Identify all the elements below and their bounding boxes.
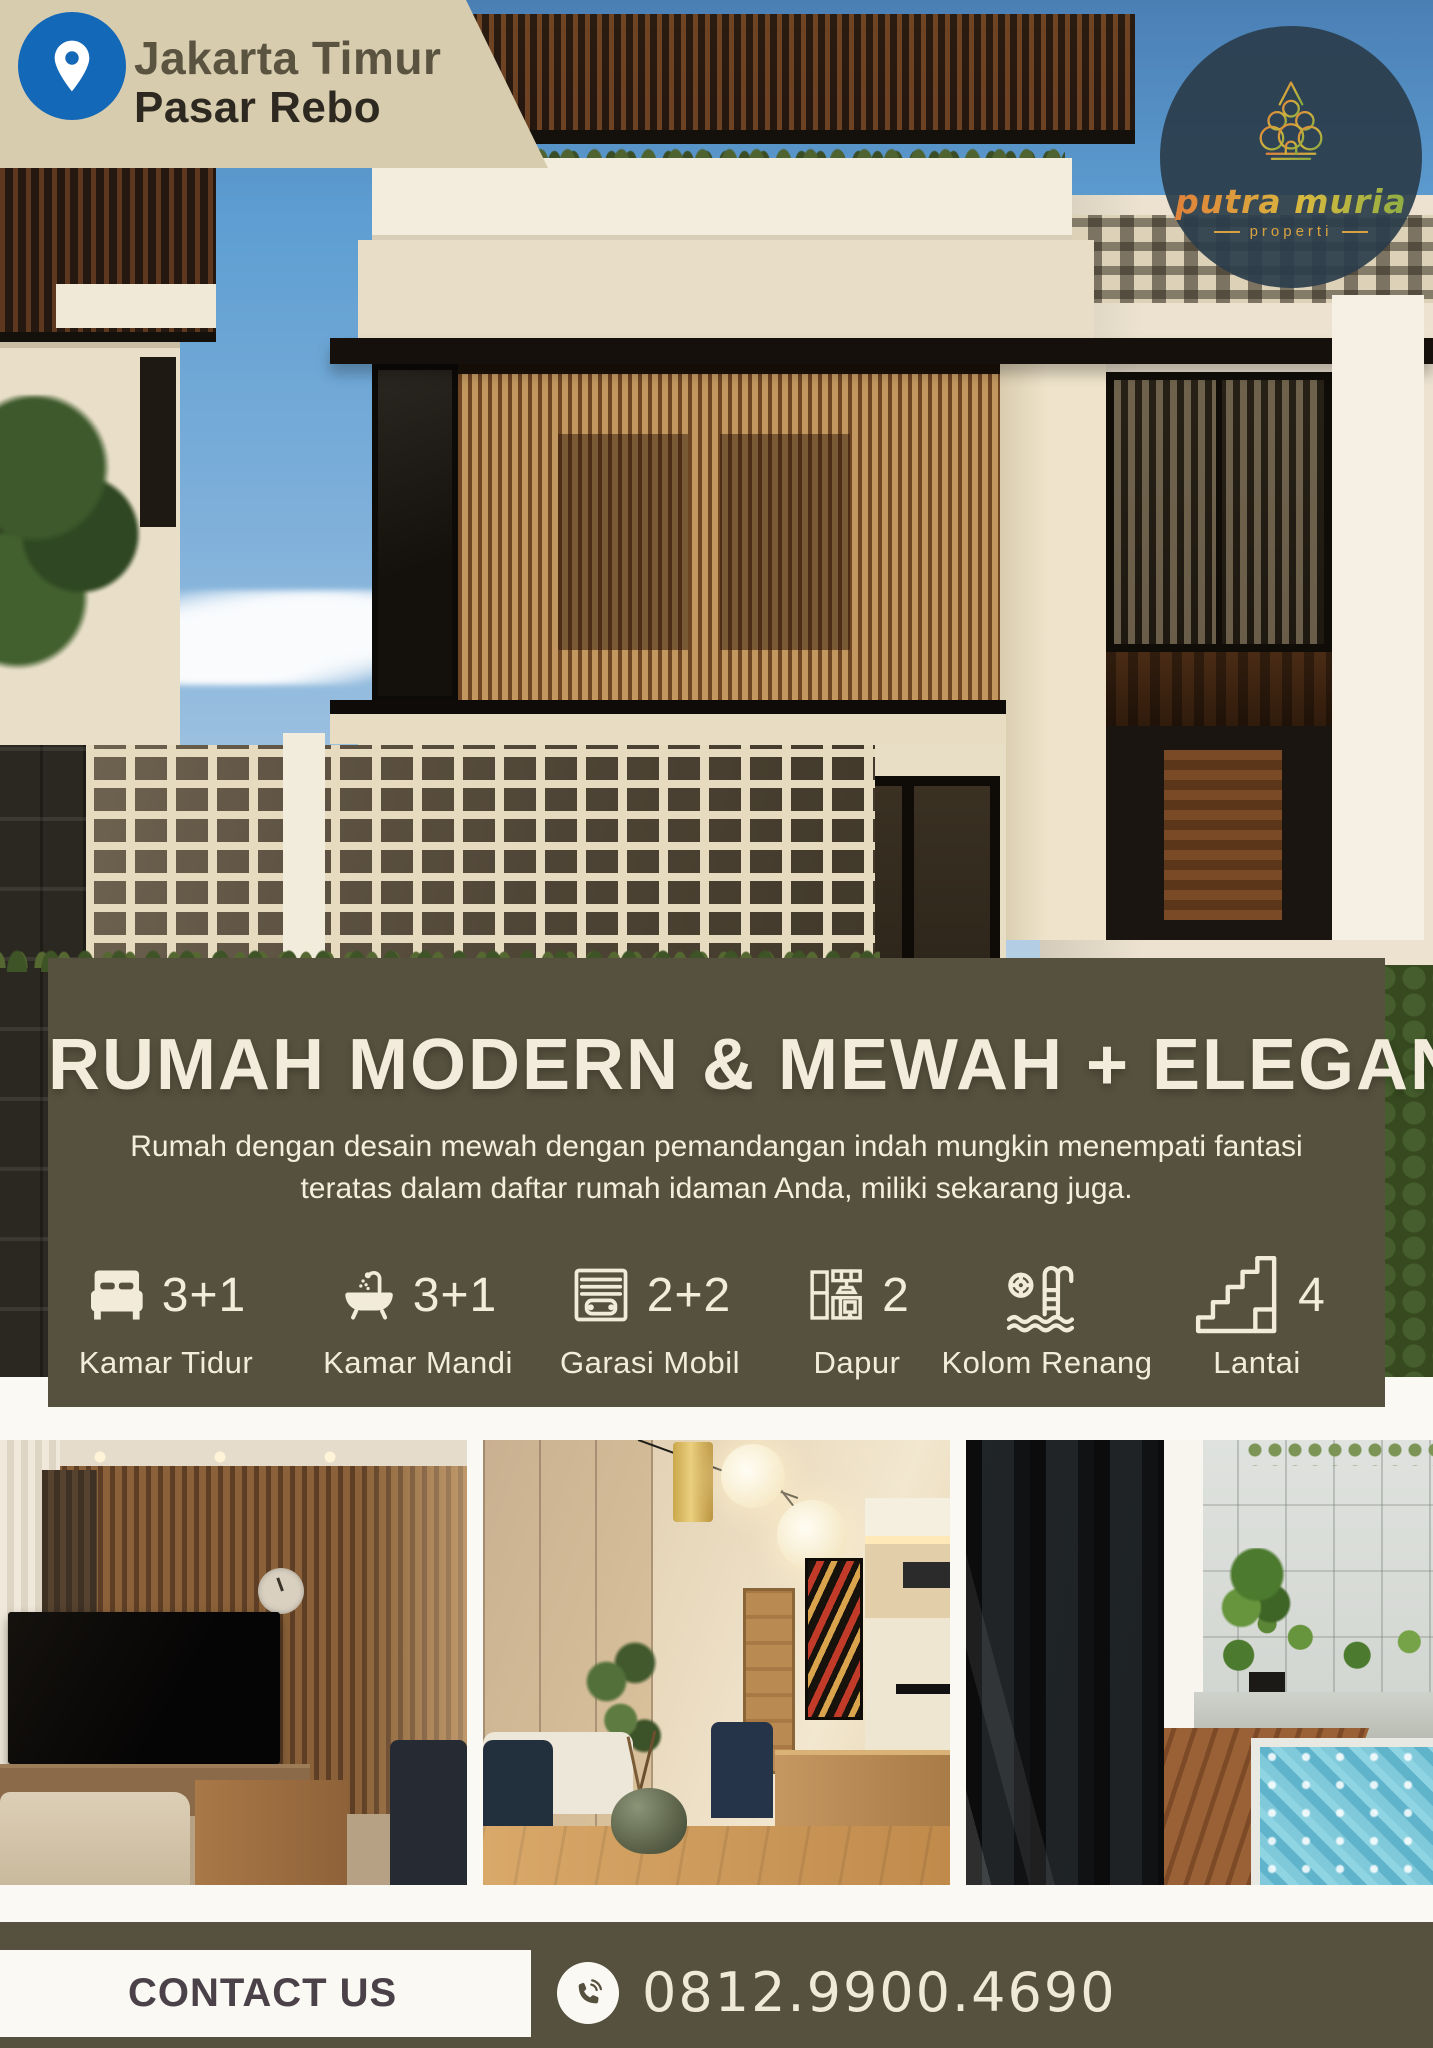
range-hood bbox=[903, 1562, 950, 1588]
feature-value: 3+1 bbox=[413, 1268, 497, 1323]
upper-window bbox=[372, 364, 458, 702]
potted-tree bbox=[1218, 1548, 1296, 1680]
dining-chair bbox=[711, 1722, 773, 1818]
hanging-vine bbox=[1246, 1440, 1433, 1466]
phone-number[interactable]: 0812.9900.4690 bbox=[642, 1962, 1117, 2024]
feature-top-row: 4 bbox=[1188, 1253, 1326, 1337]
location-city: Jakarta Timur bbox=[134, 32, 514, 84]
phone-icon bbox=[570, 1975, 606, 2011]
black-fascia-slab bbox=[330, 338, 1433, 364]
cooktop bbox=[896, 1684, 950, 1694]
headline-description: Rumah dengan desain mewah dengan pemanda… bbox=[122, 1126, 1312, 1210]
bed-icon bbox=[86, 1264, 148, 1326]
info-panel: RUMAH MODERN & MEWAH + ELEGAN Rumah deng… bbox=[48, 958, 1385, 1407]
gold-pendant-lamp bbox=[673, 1442, 713, 1522]
contact-us-label: CONTACT US bbox=[0, 1950, 531, 2037]
brand-subtitle-row: properti bbox=[1214, 223, 1369, 240]
white-pillar bbox=[1332, 295, 1424, 940]
right-unit-window bbox=[1106, 372, 1332, 652]
feature-top-row: 3+1 bbox=[323, 1253, 513, 1337]
ceramic-vase bbox=[611, 1788, 687, 1854]
feature-value: 3+1 bbox=[162, 1268, 246, 1323]
pool-ladder-icon bbox=[998, 1253, 1082, 1337]
location-text: Jakarta Timur Pasar Rebo bbox=[134, 32, 514, 132]
real-estate-flyer: Jakarta Timur Pasar Rebo pu bbox=[0, 0, 1433, 2048]
photo-pool-courtyard bbox=[966, 1440, 1433, 1885]
right-unit-door bbox=[1106, 726, 1332, 940]
ceiling-downlights bbox=[80, 1444, 360, 1470]
feature-top-row: 2+2 bbox=[560, 1253, 740, 1337]
bathtub-icon bbox=[339, 1265, 399, 1325]
wood-side-table bbox=[195, 1780, 347, 1885]
front-grass bbox=[0, 872, 880, 972]
television bbox=[8, 1612, 280, 1764]
location-pin-icon bbox=[18, 12, 126, 120]
armchair bbox=[390, 1740, 467, 1885]
contact-us-button[interactable]: CONTACT US bbox=[0, 1950, 531, 2037]
feature-label: Kolom Renang bbox=[941, 1345, 1152, 1381]
brand-name: putra muria bbox=[1175, 182, 1407, 221]
pin-glyph bbox=[41, 35, 103, 97]
garage-icon bbox=[569, 1263, 633, 1327]
neighbor-fascia bbox=[56, 284, 216, 328]
upper-wall bbox=[358, 240, 1094, 340]
feature-label: Kamar Tidur bbox=[79, 1345, 253, 1381]
cream-pillar bbox=[1000, 360, 1106, 940]
feature-label: Kamar Mandi bbox=[323, 1345, 513, 1381]
feature-bedrooms: 3+1 Kamar Tidur bbox=[79, 1253, 253, 1381]
feature-label: Dapur bbox=[804, 1345, 910, 1381]
location-district: Pasar Rebo bbox=[134, 84, 514, 132]
brand-subtitle: properti bbox=[1250, 223, 1333, 240]
brand-logo: putra muria properti bbox=[1160, 26, 1422, 288]
headline-title: RUMAH MODERN & MEWAH + ELEGAN bbox=[48, 1024, 1385, 1106]
wall-clock bbox=[258, 1568, 304, 1614]
feature-kitchen: 2 Dapur bbox=[804, 1253, 910, 1381]
feature-top-row bbox=[941, 1253, 1152, 1337]
feature-value: 2 bbox=[882, 1268, 910, 1323]
photo-dining-kitchen bbox=[483, 1440, 950, 1885]
feature-floors: 4 Lantai bbox=[1188, 1253, 1326, 1381]
gunungan-tree-icon bbox=[1239, 74, 1343, 178]
kitchen-icon bbox=[804, 1263, 868, 1327]
photo-living-room bbox=[0, 1440, 467, 1885]
tree bbox=[0, 395, 145, 685]
phone-icon-circle bbox=[557, 1962, 619, 2024]
location-badge: Jakarta Timur Pasar Rebo bbox=[0, 0, 548, 168]
kitchen-cabinets bbox=[865, 1498, 950, 1752]
feature-top-row: 2 bbox=[804, 1253, 910, 1337]
globe-lamp bbox=[721, 1444, 785, 1508]
stairs-icon bbox=[1188, 1247, 1284, 1343]
roof-planter-box bbox=[372, 158, 1072, 240]
feature-value: 2+2 bbox=[647, 1268, 731, 1323]
feature-value: 4 bbox=[1298, 1268, 1326, 1323]
dining-table bbox=[483, 1826, 950, 1885]
feature-top-row: 3+1 bbox=[79, 1253, 253, 1337]
wood-slat-screen bbox=[458, 364, 1000, 704]
feature-label: Garasi Mobil bbox=[560, 1345, 740, 1381]
feature-garage: 2+2 Garasi Mobil bbox=[560, 1253, 740, 1381]
feature-pool: Kolom Renang bbox=[941, 1253, 1152, 1381]
right-unit-awning bbox=[1106, 652, 1332, 726]
feature-label: Lantai bbox=[1188, 1345, 1326, 1381]
swimming-pool bbox=[1251, 1738, 1433, 1885]
feature-bathrooms: 3+1 Kamar Mandi bbox=[323, 1253, 513, 1381]
balcony-slab bbox=[330, 700, 1006, 744]
decorative-line bbox=[1342, 231, 1368, 233]
folding-glass-doors bbox=[966, 1440, 1164, 1885]
abstract-artwork bbox=[805, 1558, 863, 1720]
decorative-line bbox=[1214, 231, 1240, 233]
contact-bar: CONTACT US 0812.9900.4690 bbox=[0, 1922, 1433, 2048]
sofa bbox=[0, 1792, 190, 1885]
